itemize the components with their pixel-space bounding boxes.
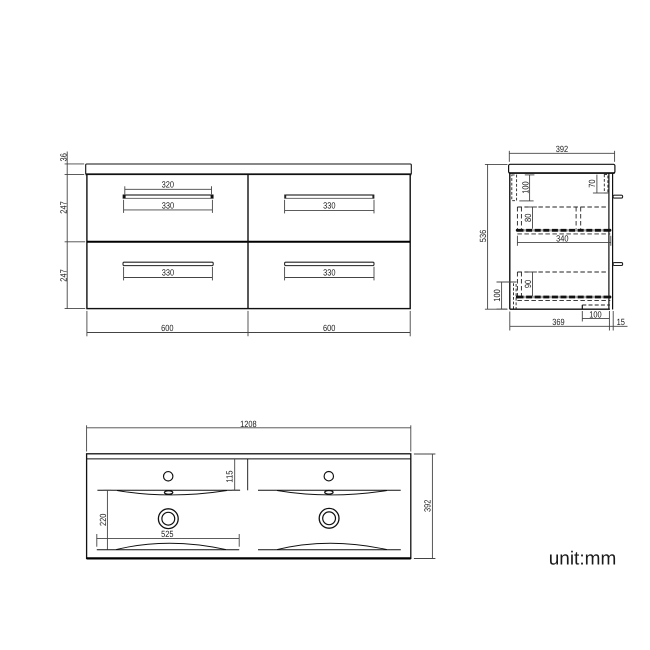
svg-text:536: 536 bbox=[478, 230, 488, 242]
svg-text:unit:mm: unit:mm bbox=[549, 549, 617, 570]
svg-text:369: 369 bbox=[552, 317, 564, 327]
svg-text:115: 115 bbox=[224, 470, 234, 482]
svg-text:320: 320 bbox=[162, 180, 174, 190]
svg-text:100: 100 bbox=[589, 309, 601, 319]
svg-text:80: 80 bbox=[523, 214, 533, 222]
svg-text:600: 600 bbox=[323, 323, 335, 333]
svg-text:330: 330 bbox=[323, 201, 335, 211]
svg-text:100: 100 bbox=[492, 289, 502, 301]
svg-text:100: 100 bbox=[520, 181, 530, 193]
svg-text:247: 247 bbox=[58, 201, 68, 213]
svg-text:90: 90 bbox=[523, 280, 533, 288]
svg-text:330: 330 bbox=[162, 268, 174, 278]
svg-text:15: 15 bbox=[617, 317, 625, 327]
svg-text:36: 36 bbox=[58, 153, 68, 161]
svg-text:70: 70 bbox=[587, 179, 597, 187]
svg-text:340: 340 bbox=[556, 233, 568, 243]
svg-text:330: 330 bbox=[162, 201, 174, 211]
svg-text:1208: 1208 bbox=[240, 419, 257, 429]
svg-text:392: 392 bbox=[556, 144, 568, 154]
svg-text:600: 600 bbox=[161, 323, 173, 333]
svg-text:525: 525 bbox=[161, 529, 173, 539]
svg-text:247: 247 bbox=[58, 269, 68, 281]
svg-text:220: 220 bbox=[98, 514, 108, 526]
svg-text:392: 392 bbox=[423, 500, 433, 512]
svg-text:330: 330 bbox=[323, 268, 335, 278]
